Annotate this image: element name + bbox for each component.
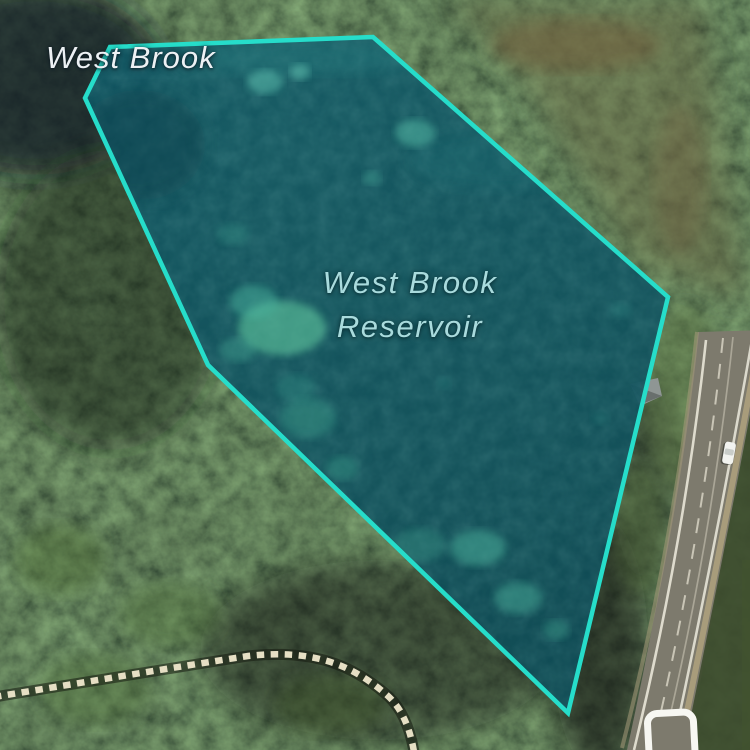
satellite-imagery: [0, 0, 750, 750]
route-shield-icon: [647, 712, 696, 750]
satellite-map-view[interactable]: West Brook West Brook Reservoir: [0, 0, 750, 750]
